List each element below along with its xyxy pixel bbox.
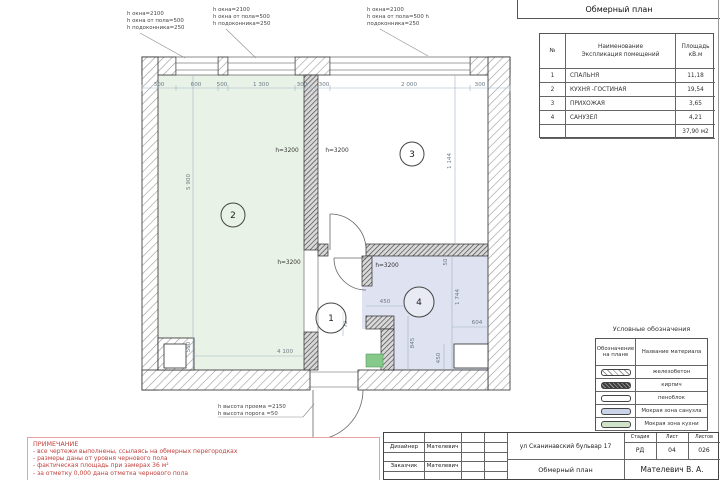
stage-label: Стадия: [624, 433, 656, 442]
col-name-header: Наименование Экспликация помещений: [566, 34, 676, 69]
svg-text:h подоконника=250: h подоконника=250: [213, 21, 271, 27]
room3-door-arc: [330, 214, 366, 250]
table-total-empty: [540, 125, 566, 139]
table-row-name: САНУЗЕЛ: [566, 111, 676, 125]
dim-label: 500: [217, 82, 228, 88]
col-area-header: Площадь кВ.м: [676, 34, 715, 69]
legend-swatch-wet-zone-kitchen: [601, 421, 631, 428]
ceiling-height-label: h=3200: [275, 148, 299, 154]
legend-swatch-foam-block: [601, 395, 631, 402]
ceiling-height-label: h=3200: [325, 148, 349, 154]
legend-col-material: Название материала: [636, 339, 707, 366]
note-line: - размеры даны от уровня чернового пола: [33, 455, 374, 462]
sheet-title: Обмерный план: [585, 5, 652, 14]
designer-label: Дизайнер: [384, 442, 424, 452]
ceiling-height-label: h=3200: [277, 260, 301, 266]
sheet-title-box: Обмерный план: [517, 0, 720, 19]
client-name: Мателевич: [424, 461, 461, 471]
legend-swatch-brick: [601, 382, 631, 389]
legend-material: Мокрая зона санузла: [636, 405, 707, 418]
window-note-2: h окна=2100: [213, 7, 250, 13]
legend-swatch-wet-zone-bathroom: [601, 408, 631, 415]
stage-value: РД: [624, 442, 656, 459]
legend-material: кирпич: [636, 379, 707, 392]
room-number-3: 3: [409, 150, 415, 160]
grid-line: [484, 433, 485, 479]
dim-label: 300: [297, 82, 308, 88]
author-name: Мателевич В. А.: [624, 459, 720, 480]
window-2: [228, 57, 295, 75]
sheet-number: 04: [656, 442, 688, 459]
dim-label: 450: [436, 352, 442, 363]
dim-label: 300: [319, 82, 330, 88]
table-total-empty: [566, 125, 676, 139]
room-kitchen-living-area: [158, 75, 304, 370]
dim-label: 50: [443, 258, 449, 266]
table-row-no: 3: [540, 97, 566, 111]
duct-box: [454, 344, 488, 368]
table-row-area: 11,18: [676, 69, 715, 83]
legend-material: железобетон: [636, 366, 707, 379]
room-number-2: 2: [230, 211, 236, 221]
window-3: [330, 57, 470, 75]
table-row-name: ПРИХОЖАЯ: [566, 97, 676, 111]
room-number-1: 1: [328, 314, 334, 324]
sheet-label: Лист: [656, 433, 688, 442]
table-row-no: 2: [540, 83, 566, 97]
door-annotation: h высота проема =2150 h высота порога =5…: [218, 404, 286, 417]
room-number-4: 4: [416, 298, 422, 308]
dim-label: 2 000: [401, 82, 417, 88]
dim-label: 300: [154, 82, 165, 88]
dim-label: 604: [472, 320, 483, 326]
svg-text:h высота порога =50: h высота порога =50: [218, 411, 278, 417]
dim-label: 300: [475, 82, 486, 88]
grid-line: [384, 452, 507, 453]
project-address: ул Сканинавский бульвар 17: [507, 433, 624, 459]
grid-line: [461, 433, 462, 479]
legend-title: Условные обозначения: [595, 325, 708, 333]
legend-material: Мокрая зона кухни: [636, 418, 707, 431]
room4-door-arc: [334, 258, 366, 290]
note-line: - все чертежи выполнены, ссылаясь на обм…: [33, 448, 374, 455]
room-table: № Наименование Экспликация помещений Пло…: [539, 33, 714, 138]
dim-label: 5 900: [186, 174, 192, 190]
sheets-total: 026: [688, 442, 720, 459]
grid-line: [384, 471, 507, 472]
table-row-no: 1: [540, 69, 566, 83]
window-1: [176, 57, 218, 75]
entrance-door-arc: [313, 390, 363, 440]
page-border-right: [718, 0, 719, 480]
window-note-1: h окна=2100: [127, 11, 164, 17]
client-label: Заказчик: [384, 461, 424, 471]
svg-text:h окна от пола=500 h: h окна от пола=500 h: [367, 14, 429, 20]
svg-text:h подоконника=250: h подоконника=250: [127, 25, 185, 31]
dim-label: 1 144: [447, 153, 453, 169]
dim-label: 500: [186, 341, 192, 352]
table-total-area: 37,90 м2: [676, 125, 715, 139]
table-row-area: 3,65: [676, 97, 715, 111]
note-line: - фактическая площадь при замерах 36 м²: [33, 462, 374, 469]
svg-text:h окна от пола=500: h окна от пола=500: [127, 18, 184, 24]
notes-title: ПРИМЕЧАНИЕ: [33, 440, 374, 448]
table-row-name: КУХНЯ -ГОСТИНАЯ: [566, 83, 676, 97]
drawing-sheet: h окна=2100 h окна от пола=500 h подокон…: [0, 0, 720, 480]
drawing-title: Обмерный план: [507, 459, 624, 480]
svg-text:h высота проема =2150: h высота проема =2150: [218, 404, 286, 410]
designer-name: Мателевич: [424, 442, 461, 452]
table-row-area: 19,54: [676, 83, 715, 97]
dim-label: 450: [380, 299, 391, 305]
table-row-name: СПАЛЬНЯ: [566, 69, 676, 83]
notes-box: ПРИМЕЧАНИЕ - все чертежи выполнены, ссыл…: [27, 437, 380, 480]
title-block: Дизайнер Мателевич Заказчик Мателевич ул…: [383, 432, 719, 480]
legend-material: пеноблок: [636, 392, 707, 405]
dim-label: 845: [410, 337, 416, 348]
legend-table: Обозначение на плане Название материала …: [595, 338, 708, 431]
dim-label: 1 744: [455, 289, 461, 305]
svg-text:подоконника=250: подоконника=250: [367, 21, 420, 27]
table-row-area: 4,21: [676, 111, 715, 125]
dim-label: 600: [191, 82, 202, 88]
dim-label: 1 300: [253, 82, 269, 88]
col-no-header: №: [540, 34, 566, 69]
sheets-label: Листов: [688, 433, 720, 442]
ceiling-height-label: h=3200: [375, 263, 399, 269]
window-annotations: h окна=2100 h окна от пола=500 h подокон…: [127, 7, 429, 31]
legend-swatch-reinforced-concrete: [601, 369, 631, 376]
note-line: - за отметку 0,000 дана отметка черновог…: [33, 470, 374, 477]
wet-zone-kitchen-marker: [366, 354, 383, 367]
window-note-3: h окна=2100: [367, 7, 404, 13]
dim-label: 4 100: [277, 349, 293, 355]
svg-text:h окна от пола=500: h окна от пола=500: [213, 14, 270, 20]
table-row-no: 4: [540, 111, 566, 125]
legend-col-symbol: Обозначение на плане: [596, 339, 636, 366]
grid-line: [424, 433, 425, 479]
